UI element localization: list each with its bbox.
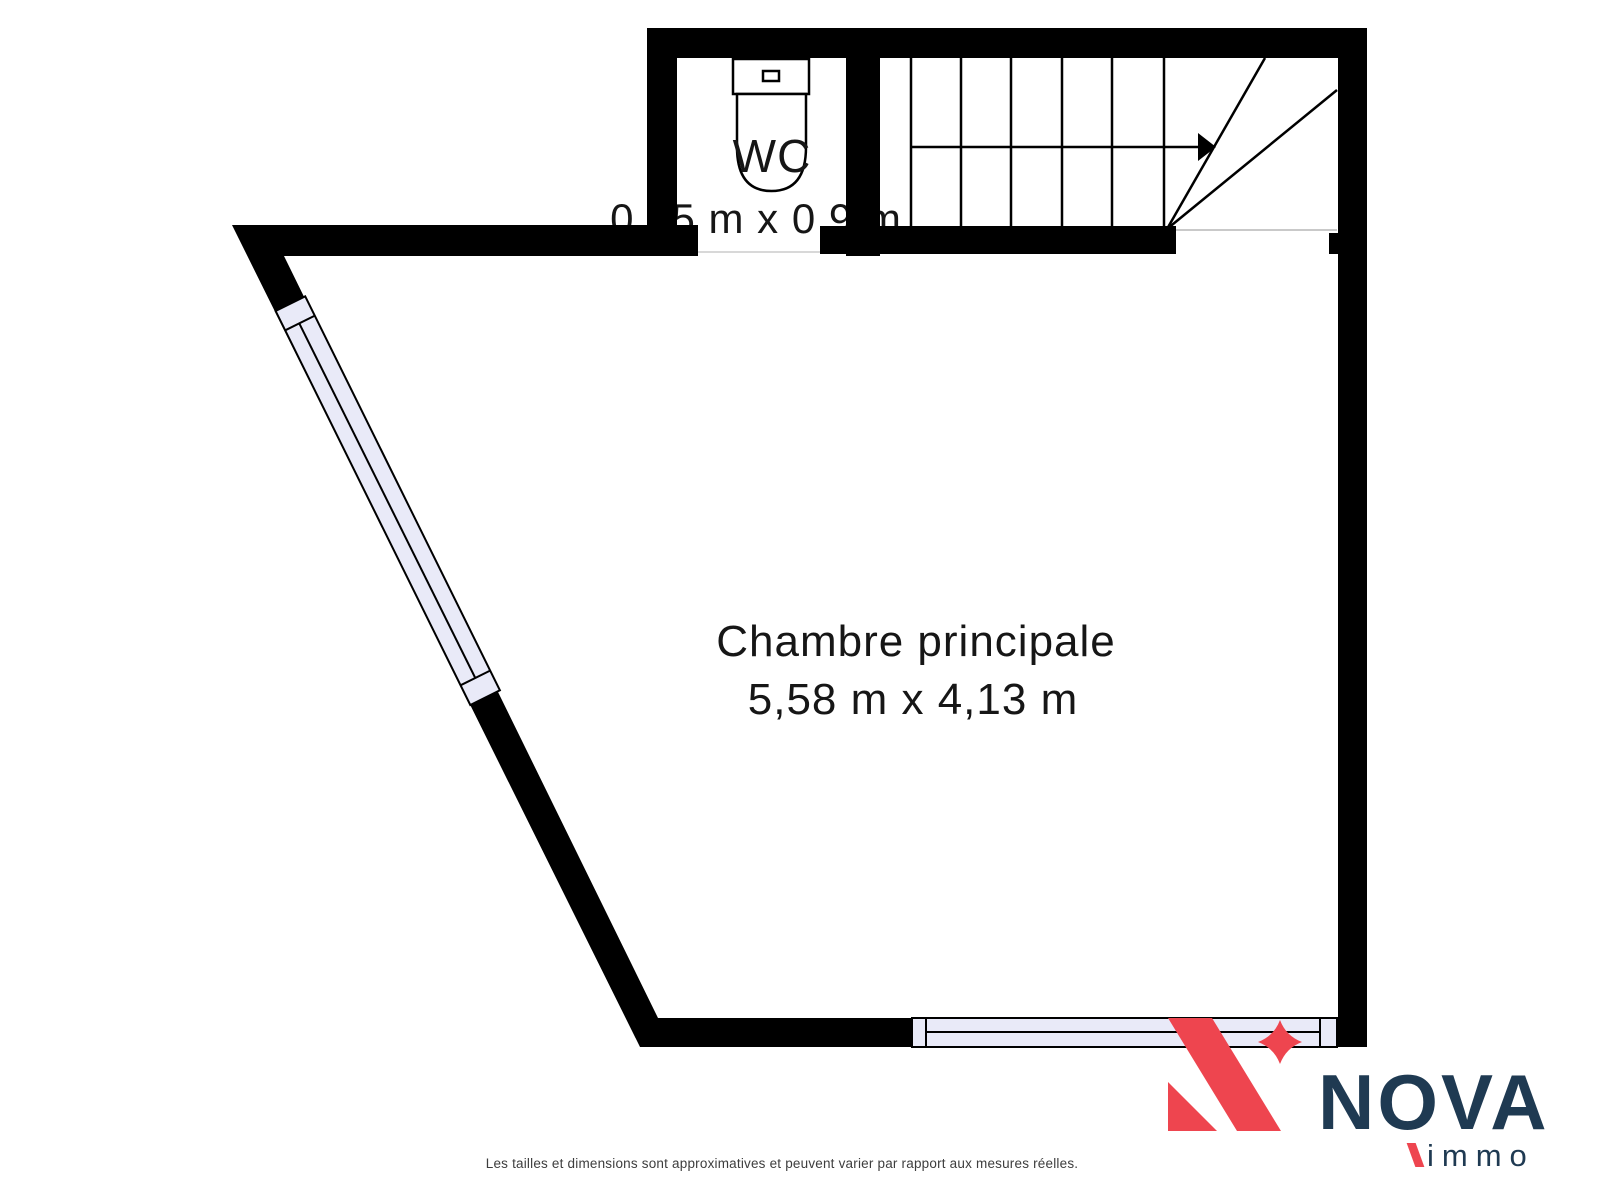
wc-label: WC	[733, 130, 812, 182]
wall-stair-exit-stub	[1329, 233, 1338, 254]
wall-right	[1338, 28, 1367, 1047]
wall-wc-stairs-divider	[846, 28, 880, 256]
logo-triangle	[1168, 1082, 1217, 1131]
windows	[276, 296, 1337, 1047]
wall-top	[647, 28, 1367, 58]
floor-plan-drawing: 0,95 m x 0,9 m	[0, 0, 1600, 1200]
logo-brand-text: NOVA	[1318, 1063, 1550, 1141]
room-label: Chambre principale	[716, 617, 1116, 666]
window-diagonal	[276, 296, 500, 705]
floor-plan-canvas: 0,95 m x 0,9 m	[0, 0, 1600, 1200]
wall-under-stairs	[820, 226, 1176, 254]
wall-wc-left	[647, 28, 677, 256]
staircase-icon	[911, 58, 1337, 230]
disclaimer-text: Les tailles et dimensions sont approxima…	[0, 1156, 1564, 1171]
room-dimensions-label: 5,58 m x 4,13 m	[748, 675, 1078, 724]
